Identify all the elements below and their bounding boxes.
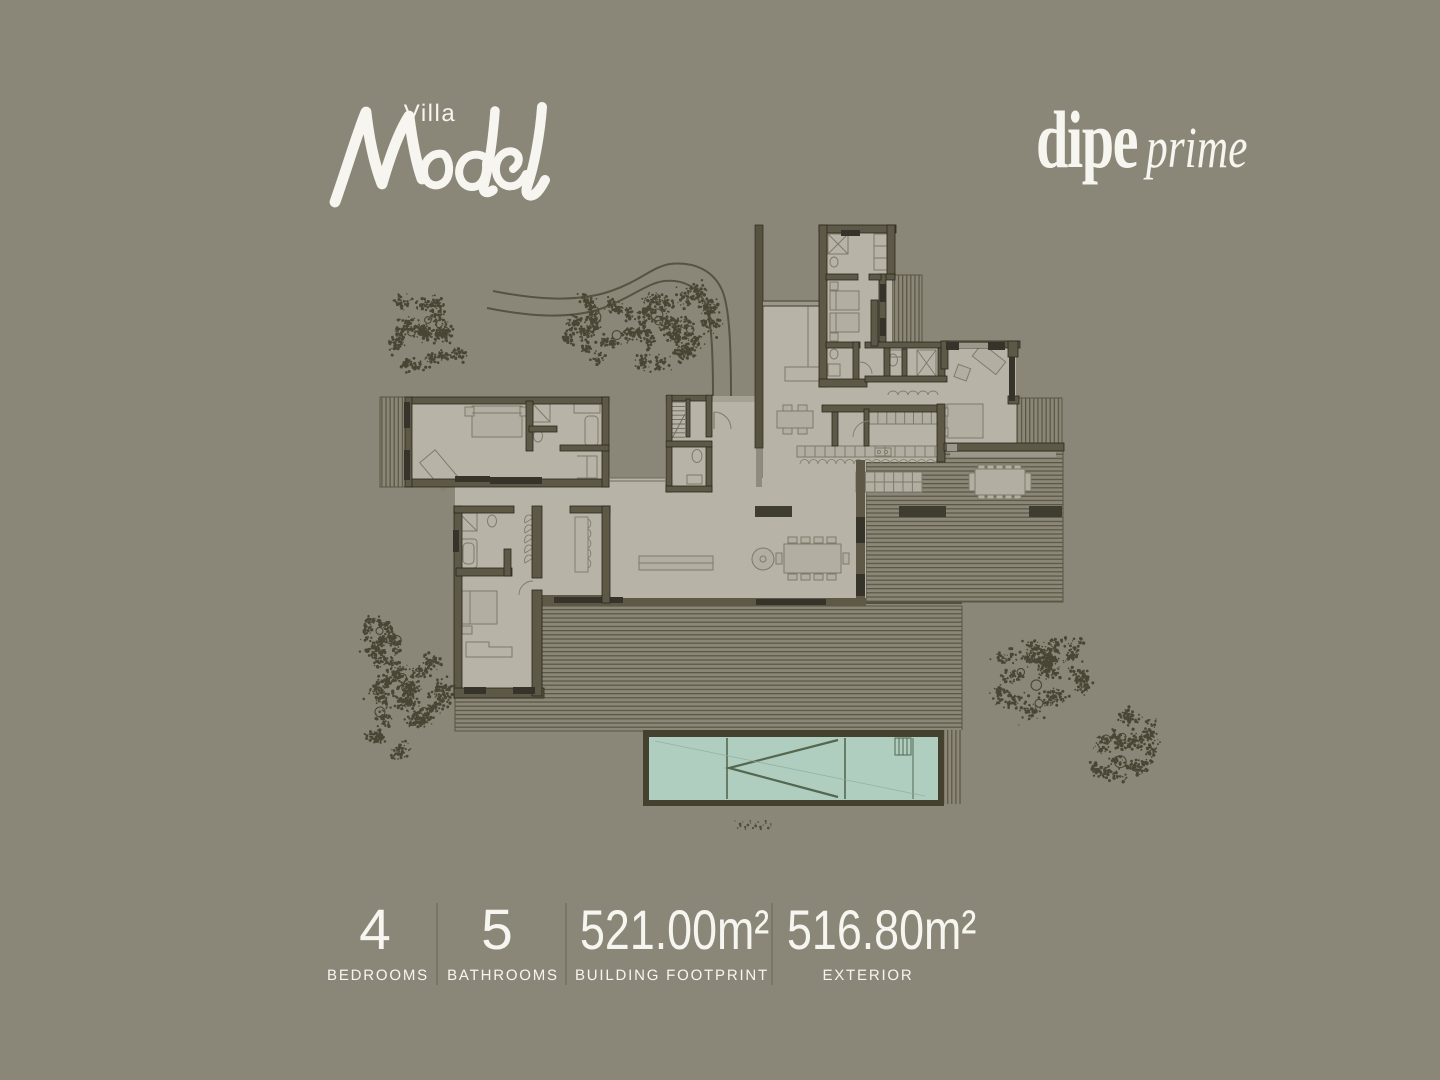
svg-text:521.00m²: 521.00m²	[580, 898, 769, 961]
svg-text:4: 4	[359, 898, 391, 962]
svg-text:EXTERIOR: EXTERIOR	[822, 967, 913, 984]
svg-text:BEDROOMS: BEDROOMS	[327, 967, 429, 984]
svg-text:BUILDING FOOTPRINT: BUILDING FOOTPRINT	[575, 967, 769, 984]
svg-text:5: 5	[481, 898, 513, 962]
svg-text:prime: prime	[1143, 116, 1247, 180]
svg-text:dipe: dipe	[1036, 96, 1137, 186]
svg-text:516.80m²: 516.80m²	[787, 898, 976, 961]
svg-text:BATHROOMS: BATHROOMS	[447, 967, 559, 984]
